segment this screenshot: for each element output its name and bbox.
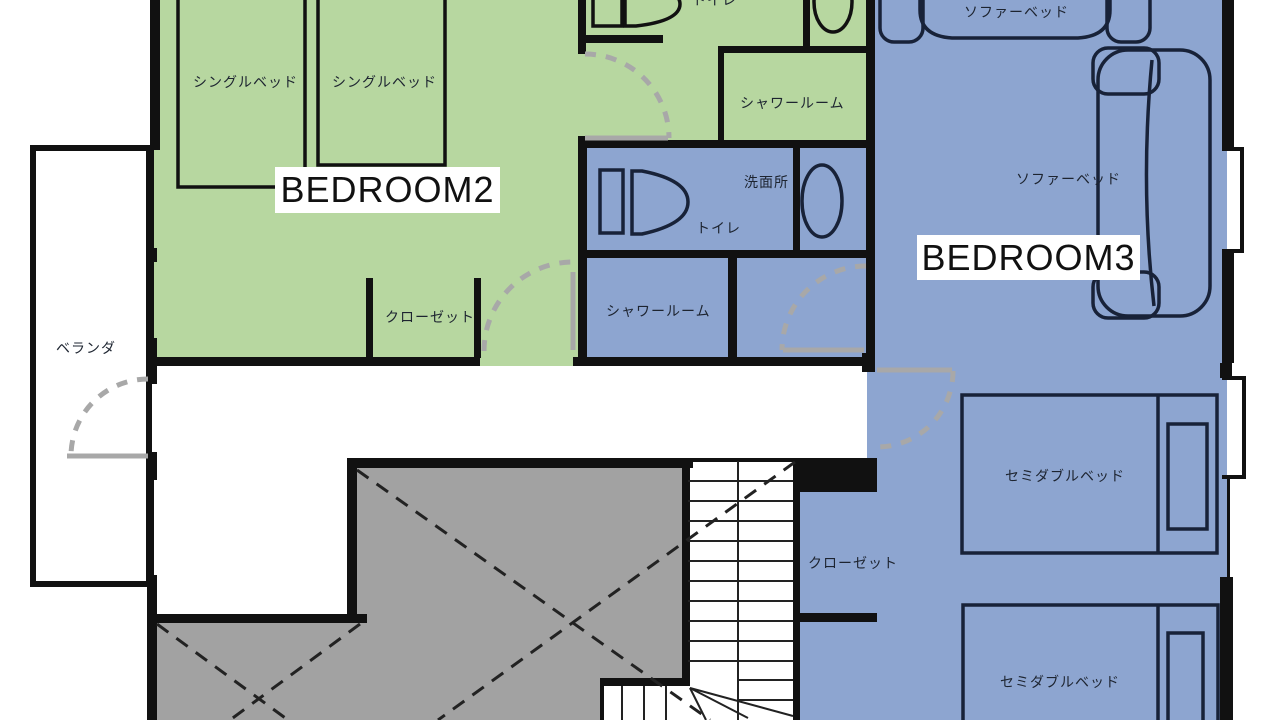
sink-blue — [802, 165, 842, 237]
veranda-door-arc — [71, 379, 148, 456]
semi-double-bed-2 — [963, 605, 1218, 720]
toilet-blue-tank — [600, 170, 623, 233]
single-bed-1-outline — [178, 0, 305, 187]
washroom-door-arc — [782, 266, 866, 350]
door-swing-arcs — [71, 54, 953, 456]
semi-double-bed-2-label: セミダブルベッド — [1000, 672, 1120, 692]
shower-room-green-label: シャワールーム — [740, 93, 845, 113]
bedroom2-door-arc — [484, 262, 573, 351]
single-bed-2-label: シングルベッド — [332, 72, 437, 92]
toilet-blue-label: トイレ — [696, 218, 741, 238]
bedroom3-name-tag: BEDROOM3 — [917, 235, 1140, 280]
toilet-green-label: トイレ — [692, 0, 737, 10]
veranda-label: ベランダ — [56, 338, 116, 358]
sink-green — [814, 0, 852, 32]
toilet-green-bowl — [625, 0, 680, 26]
floor-plan: トイレ シングルベッド シングルベッド シャワールーム ソファーベッド ソファー… — [0, 0, 1280, 720]
sofa-bed-1-label: ソファーベッド — [964, 2, 1069, 22]
fixtures-overlay — [0, 0, 1280, 720]
washroom-hall-door-arc — [585, 54, 669, 138]
closet-bedroom2-label: クローゼット — [385, 307, 475, 327]
shower-room-blue-label: シャワールーム — [606, 301, 711, 321]
washroom-label: 洗面所 — [744, 172, 789, 192]
staircase — [622, 461, 793, 720]
single-bed-1-label: シングルベッド — [193, 72, 298, 92]
toilet-blue-bowl — [632, 171, 688, 234]
bedroom2-name-tag: BEDROOM2 — [275, 167, 500, 213]
bedroom3-door-arc — [877, 371, 953, 447]
closet-bedroom3-label: クローゼット — [808, 553, 898, 573]
toilet-green-tank — [593, 0, 622, 26]
sofa-bed-2-label: ソファーベッド — [1016, 169, 1121, 189]
semi-double-bed-1-label: セミダブルベッド — [1005, 466, 1125, 486]
